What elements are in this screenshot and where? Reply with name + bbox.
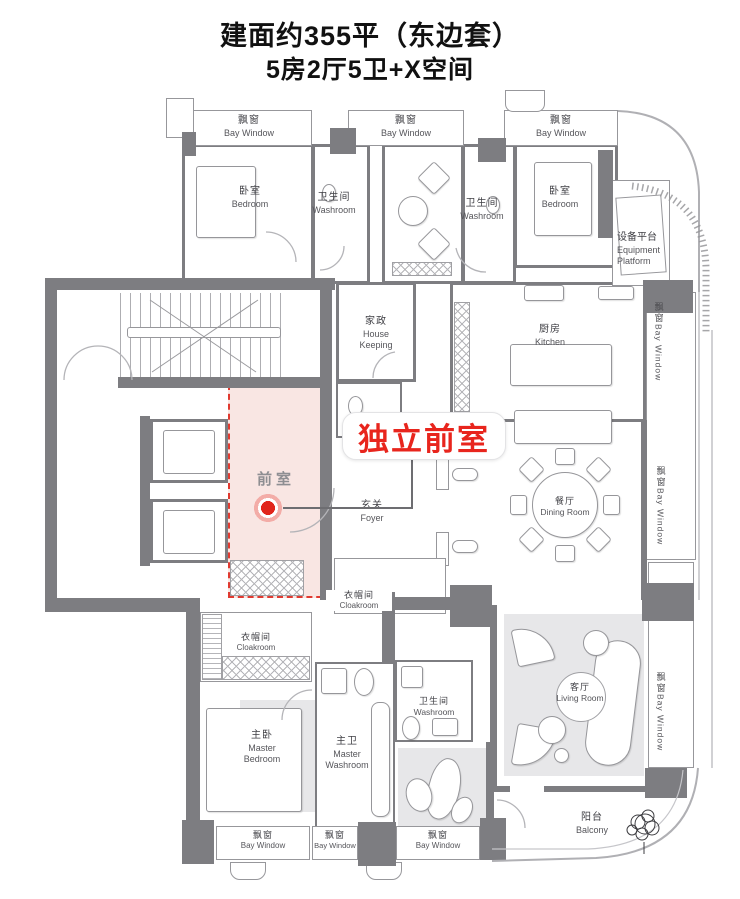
core-wall-left bbox=[45, 278, 57, 612]
wardrobe bbox=[230, 560, 304, 596]
wall-pier bbox=[642, 583, 694, 621]
shower bbox=[321, 668, 347, 694]
stair-landing bbox=[127, 327, 281, 338]
wardrobe bbox=[222, 656, 310, 680]
kitchen-cabinet bbox=[454, 302, 470, 412]
shower bbox=[401, 666, 423, 688]
chair bbox=[585, 526, 612, 553]
chair bbox=[510, 495, 527, 515]
stair-wall bbox=[118, 377, 332, 388]
room-label-master-washroom: 主卫Master Washroom bbox=[316, 736, 378, 771]
callout-line-horizontal bbox=[283, 507, 413, 509]
chair bbox=[518, 526, 545, 553]
room-label-master-bedroom: 主卧Master Bedroom bbox=[226, 730, 298, 765]
wall-pier bbox=[182, 820, 214, 864]
bay-window-label: 飘窗Bay Window bbox=[216, 830, 310, 851]
plant-icon bbox=[627, 810, 659, 854]
chair bbox=[585, 456, 612, 483]
bench bbox=[452, 540, 478, 553]
elevator-shaft-wall bbox=[140, 416, 150, 566]
room-label-cloakroom: 衣帽间Cloakroom bbox=[224, 632, 288, 653]
bay-window-label-vertical: 飘窗Bay Window bbox=[652, 672, 670, 751]
chair bbox=[555, 448, 575, 465]
room-label-foyer: 玄关Foyer bbox=[342, 500, 402, 524]
wall-pier bbox=[480, 818, 506, 860]
elevator-cab bbox=[163, 510, 215, 554]
stove bbox=[524, 285, 564, 301]
dining-wall-right bbox=[641, 420, 647, 600]
room-label-bedroom-left: 卧室Bedroom bbox=[200, 186, 300, 210]
bench bbox=[392, 262, 452, 276]
toilet bbox=[354, 668, 374, 696]
chair bbox=[555, 545, 575, 562]
core-wall-top bbox=[45, 278, 335, 290]
room-label-equipment-platform: 设备平台Equipment Platform bbox=[614, 232, 671, 267]
side-table bbox=[583, 630, 609, 656]
round-table bbox=[398, 196, 428, 226]
bench bbox=[452, 468, 478, 481]
bay-window-label-vertical: 飘窗Bay Window bbox=[652, 466, 670, 545]
bay-window-label: 飘窗Bay Window bbox=[504, 115, 618, 139]
exterior-sill bbox=[505, 90, 545, 112]
wall-pier bbox=[478, 138, 506, 162]
callout-label-box: 独立前室 bbox=[342, 412, 506, 460]
floor-plan-canvas: 建面约355平（东边套） 5房2厅5卫+X空间 飘窗Bay Window 飘窗B… bbox=[0, 0, 740, 899]
room-label-housekeeping: 家政House Keeping bbox=[340, 316, 412, 351]
callout-label: 独立前室 bbox=[358, 414, 490, 459]
chair bbox=[603, 495, 620, 515]
door-gap bbox=[510, 786, 544, 792]
kitchen-island bbox=[510, 344, 612, 386]
room-label-dining: 餐厅Dining Room bbox=[530, 496, 600, 518]
bay-window-label: 飘窗Bay Window bbox=[186, 115, 312, 139]
room-label-bedroom-right: 卧室Bedroom bbox=[510, 186, 610, 210]
bay-window-label-vertical: 飘窗Bay Window bbox=[650, 302, 668, 381]
room-label-balcony: 阳台Balcony bbox=[558, 812, 626, 836]
front-room-label: 前室 bbox=[236, 468, 316, 489]
core-wall-right bbox=[320, 278, 332, 600]
exterior-sill bbox=[230, 862, 266, 880]
room-label-cloakroom-small: 衣帽间Cloakroom bbox=[326, 590, 392, 611]
wall-block bbox=[450, 585, 492, 627]
elevator-cab bbox=[163, 430, 215, 474]
chair bbox=[518, 456, 545, 483]
kitchen-sink bbox=[598, 286, 634, 300]
highlight-marker-dot bbox=[253, 493, 283, 523]
room-label-washroom-top2: 卫生间Washroom bbox=[452, 198, 512, 222]
sideboard bbox=[514, 410, 612, 444]
coffee-table bbox=[538, 716, 566, 744]
room-label-washroom-bottom: 卫生间Washroom bbox=[400, 696, 468, 718]
core-wall-bottom bbox=[45, 598, 200, 612]
toilet bbox=[402, 716, 420, 740]
room-label-kitchen: 厨房Kitchen bbox=[512, 324, 588, 348]
wardrobe bbox=[202, 614, 222, 680]
bay-window-label: 飘窗Bay Window bbox=[348, 115, 464, 139]
callout-line-vertical bbox=[411, 457, 413, 508]
page-title-line1: 建面约355平（东边套） bbox=[0, 14, 740, 53]
wall-pier bbox=[645, 768, 687, 798]
bay-window-label: 飘窗Bay Window bbox=[396, 830, 480, 851]
bay-window-label: 飘窗Bay Window bbox=[306, 830, 364, 851]
page-title-line2: 5房2厅5卫+X空间 bbox=[0, 50, 740, 86]
sink bbox=[432, 718, 458, 736]
room-label-living: 客厅Living Room bbox=[544, 682, 616, 704]
side-table bbox=[554, 748, 569, 763]
room-label-washroom-top1: 卫生间Washroom bbox=[306, 192, 362, 216]
